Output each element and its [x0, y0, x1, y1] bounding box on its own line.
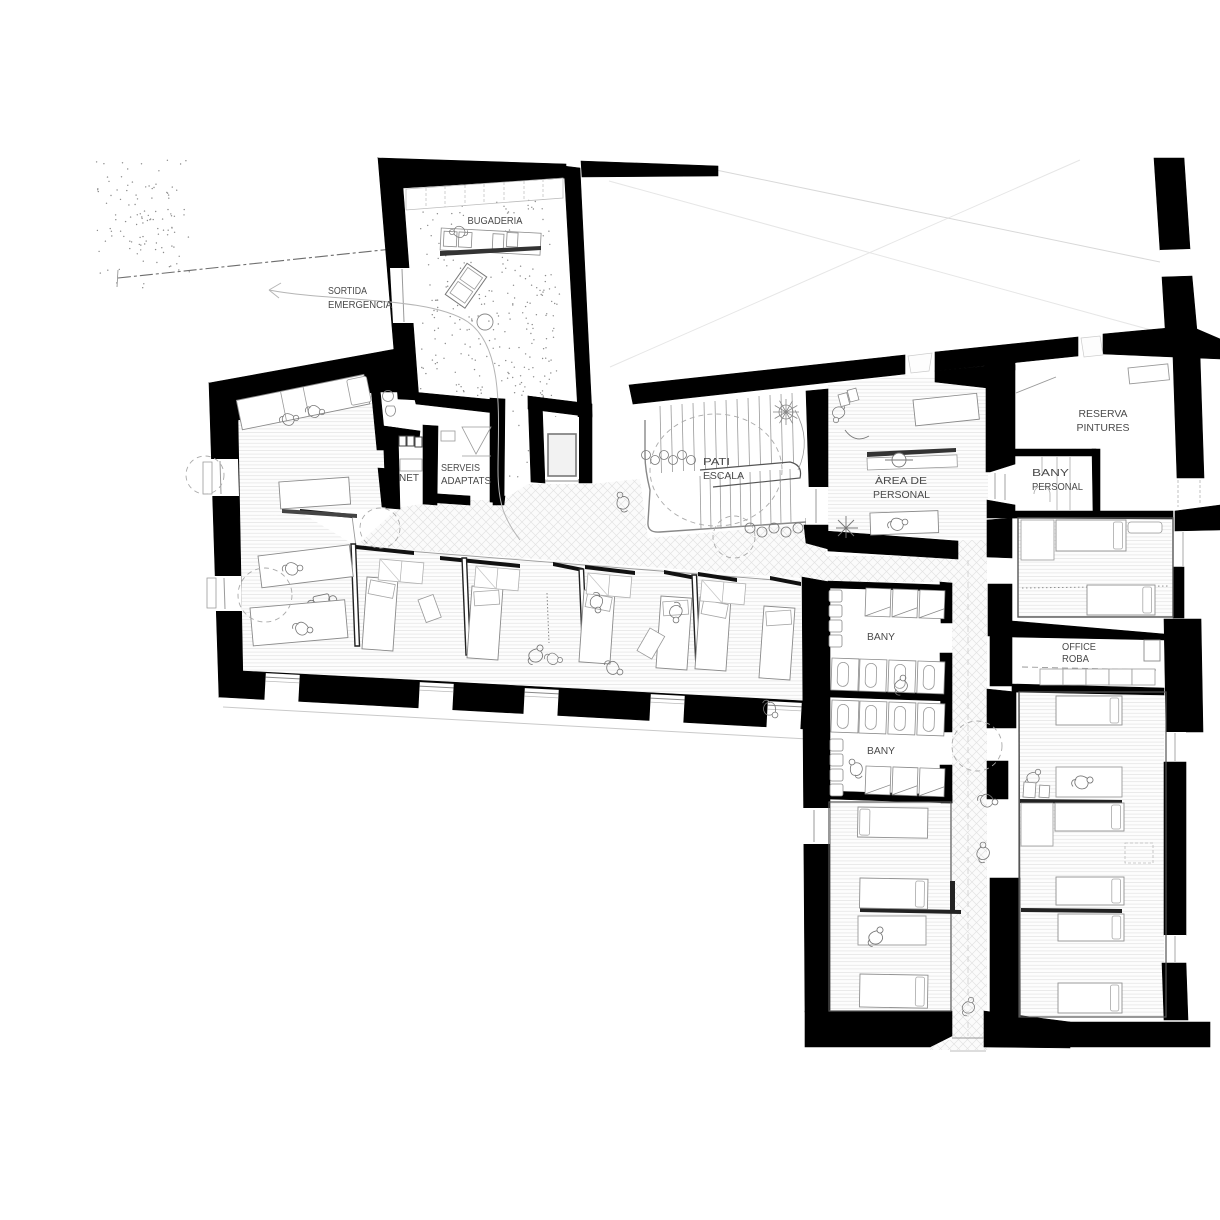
svg-text:SORTIDA: SORTIDA [328, 285, 367, 297]
svg-text:EMERGENCIA: EMERGENCIA [328, 299, 392, 311]
svg-text:BANY: BANY [867, 631, 895, 643]
svg-text:BUGADERIA: BUGADERIA [468, 215, 523, 227]
svg-text:PERSONAL: PERSONAL [873, 489, 930, 501]
svg-text:RESERVA: RESERVA [1079, 408, 1128, 420]
svg-text:ESCALA: ESCALA [703, 470, 744, 482]
svg-text:SERVEIS: SERVEIS [441, 462, 480, 474]
svg-text:PERSONAL: PERSONAL [1032, 481, 1083, 493]
svg-text:ÀREA DE: ÀREA DE [875, 474, 927, 487]
svg-text:PINTURES: PINTURES [1077, 422, 1130, 434]
svg-text:BANY: BANY [1032, 467, 1069, 479]
svg-text:PATI: PATI [703, 456, 730, 468]
svg-text:BANY: BANY [867, 745, 895, 757]
svg-text:OFFICE: OFFICE [1062, 642, 1096, 653]
svg-text:NET: NET [399, 472, 420, 484]
svg-text:ROBA: ROBA [1062, 654, 1089, 665]
svg-text:ADAPTATS: ADAPTATS [441, 475, 491, 487]
